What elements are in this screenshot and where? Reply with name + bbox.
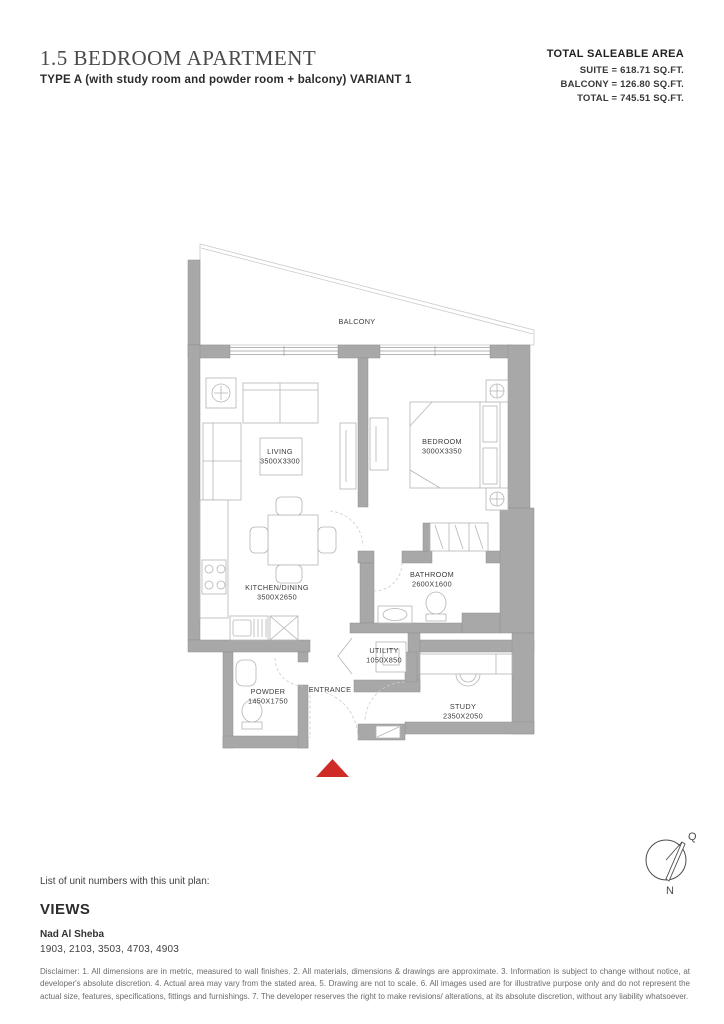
folding-door-icon bbox=[338, 638, 352, 674]
study-dims: 2350X2050 bbox=[443, 712, 483, 721]
powder-label: POWDER bbox=[251, 687, 286, 696]
saleable-area-heading: TOTAL SALEABLE AREA bbox=[547, 48, 684, 60]
bathroom-label: BATHROOM bbox=[410, 570, 454, 579]
side-table-lamp-icon bbox=[206, 378, 236, 408]
balcony-outline-icon bbox=[200, 244, 534, 345]
disclaimer-text: Disclaimer: 1. All dimensions are in met… bbox=[40, 966, 690, 1003]
views-title: VIEWS bbox=[40, 901, 210, 918]
utility-label: UTILITY bbox=[369, 646, 398, 655]
entrance-label: ENTRANCE bbox=[309, 685, 352, 694]
toilet-icon bbox=[426, 592, 446, 621]
bathroom-dims: 2600X1600 bbox=[412, 580, 452, 589]
unit-list-caption: List of unit numbers with this unit plan… bbox=[40, 876, 210, 887]
balcony-area: BALCONY = 126.80 SQ.FT. bbox=[547, 78, 684, 92]
stove-icon bbox=[202, 560, 226, 594]
compass-n-label: N bbox=[666, 885, 674, 897]
powder-sink-icon bbox=[236, 660, 256, 686]
powder-dims: 1450X1750 bbox=[248, 697, 288, 706]
bedroom-dims: 3000X3350 bbox=[422, 447, 462, 456]
location-name: Nad Al Sheba bbox=[40, 929, 210, 940]
entrance-arrow-icon bbox=[316, 759, 349, 777]
page-title: 1.5 BEDROOM APARTMENT bbox=[40, 46, 316, 71]
floor-plan: BALCONY LIVING 3500X3300 BEDROOM 3000X33… bbox=[180, 230, 540, 790]
kitchen-counter-icon bbox=[200, 500, 228, 618]
study-label: STUDY bbox=[450, 702, 476, 711]
kitchen-label: KITCHEN/DINING bbox=[245, 583, 309, 592]
desk-icon bbox=[420, 654, 512, 686]
total-area: TOTAL = 745.51 SQ.FT. bbox=[547, 92, 684, 106]
dresser-icon bbox=[370, 418, 388, 470]
appliance-space-icon bbox=[270, 616, 298, 640]
bedroom-label: BEDROOM bbox=[422, 437, 462, 446]
living-dims: 3500X3300 bbox=[260, 457, 300, 466]
tv-unit-icon bbox=[340, 423, 356, 489]
kitchen-sink-icon bbox=[230, 616, 268, 640]
compass-q-label: Q bbox=[688, 831, 697, 843]
unit-list-block: List of unit numbers with this unit plan… bbox=[40, 876, 210, 955]
dining-table-icon bbox=[250, 497, 336, 583]
utility-dims: 1050X850 bbox=[366, 656, 402, 665]
wardrobe-icon bbox=[430, 523, 488, 551]
unit-numbers: 1903, 2103, 3503, 4703, 4903 bbox=[40, 944, 210, 955]
shoe-cabinet-icon bbox=[376, 726, 400, 738]
suite-area: SUITE = 618.71 SQ.FT. bbox=[547, 64, 684, 78]
balcony-label: BALCONY bbox=[339, 317, 376, 326]
floor-plan-drawing: BALCONY LIVING 3500X3300 BEDROOM 3000X33… bbox=[180, 230, 540, 790]
compass-icon: Q N bbox=[638, 826, 702, 898]
saleable-area-block: TOTAL SALEABLE AREA SUITE = 618.71 SQ.FT… bbox=[547, 48, 684, 106]
living-label: LIVING bbox=[267, 447, 293, 456]
kitchen-dims: 3500X2650 bbox=[257, 593, 297, 602]
page-subtitle: TYPE A (with study room and powder room … bbox=[40, 74, 412, 86]
floorplan-page: 1.5 BEDROOM APARTMENT TYPE A (with study… bbox=[0, 0, 724, 1024]
bathroom-vanity-icon bbox=[378, 606, 412, 623]
